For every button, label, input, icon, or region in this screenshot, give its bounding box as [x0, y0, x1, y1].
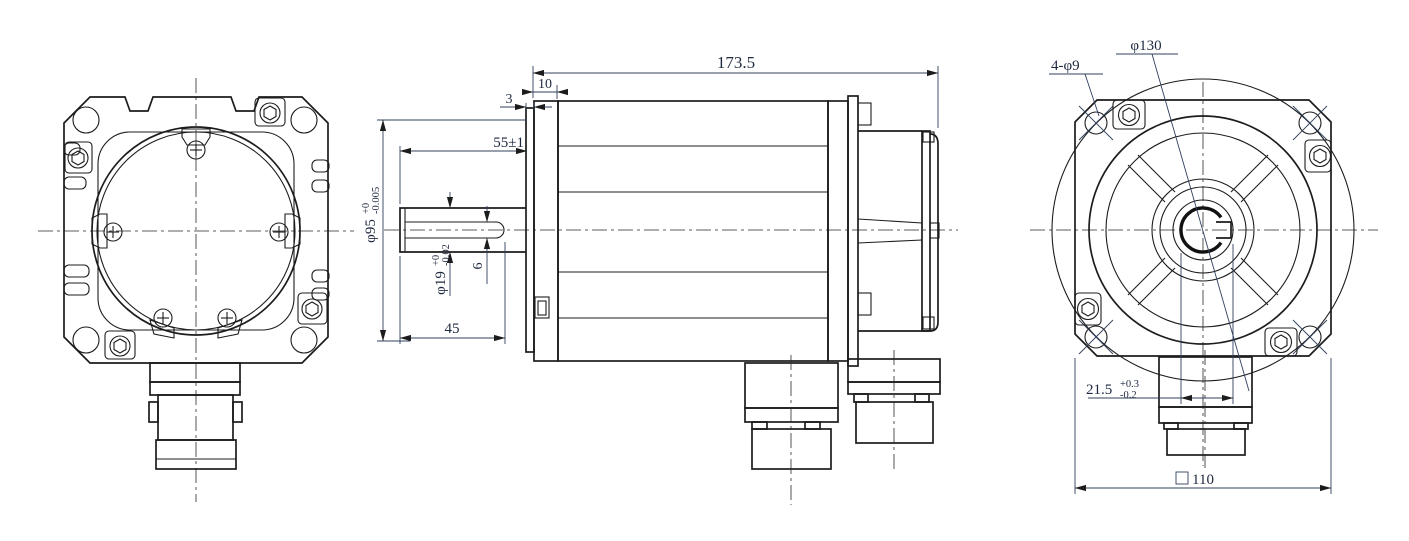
dim-overall-length: 173.5: [533, 53, 938, 128]
corner-bolt-holes: [73, 107, 317, 353]
dim-text-pilot-depth: 10: [538, 77, 552, 92]
encoder-connector: [848, 350, 940, 472]
dim-text-shaft-extension: 55±1: [493, 135, 524, 151]
rear-endbell: [828, 101, 848, 361]
side-view: 173.5 10 3 55±1 φ95 +0: [361, 53, 958, 505]
dim-text-shaft-diameter: φ19: [433, 271, 449, 295]
rear-rib: [848, 96, 858, 366]
dim-pilot-diameter: φ95 +0 -0.005: [361, 120, 526, 341]
dim-text-mounting-holes: 4-φ9: [1051, 58, 1080, 74]
dim-text-flange-square: 110: [1192, 472, 1214, 488]
dim-text-shaft-diameter-lower: -0.02: [441, 244, 452, 266]
dim-keyway-width: 6: [471, 206, 487, 284]
front-view: 4-φ9 φ130 21.5 +0.3 -0.2 110: [1030, 38, 1378, 494]
motor-dimension-drawing: 173.5 10 3 55±1 φ95 +0: [0, 0, 1409, 541]
dim-text-key-height: 21.5: [1086, 382, 1112, 398]
rear-connector: [149, 363, 242, 469]
motor-body: [526, 96, 871, 366]
encoder-housing: [858, 131, 939, 331]
rear-view: [38, 78, 354, 502]
dim-text-overall-length: 173.5: [717, 53, 755, 72]
dim-text-keyway-length: 45: [445, 321, 460, 337]
dim-text-key-height-lower: -0.2: [1120, 390, 1137, 401]
dim-mounting-holes: 4-φ9: [1049, 58, 1103, 116]
ground-terminal: [535, 297, 549, 318]
stator-housing: [558, 101, 828, 361]
drawing-sheet: 173.5 10 3 55±1 φ95 +0: [0, 0, 1409, 541]
encoder-screw-bottom: [923, 317, 934, 329]
dim-text-bolt-circle: φ130: [1130, 38, 1161, 54]
dim-shaft-extension: 55±1: [400, 135, 527, 204]
fin-lines: [558, 146, 828, 318]
dim-keyway-length: 45: [400, 242, 505, 344]
dim-pilot-depth: 10: [523, 77, 567, 99]
rib-tab-bottom: [858, 293, 871, 315]
square-symbol-icon: [1176, 472, 1188, 484]
dim-text-key-height-upper: +0.3: [1120, 379, 1139, 390]
front-endbell: [534, 101, 558, 361]
rib-tab-top: [858, 103, 871, 125]
dim-text-pilot-diameter: φ95: [363, 219, 379, 243]
front-connector: [1159, 350, 1252, 468]
encoder-end-plate: [922, 131, 930, 331]
power-connector: [745, 355, 838, 505]
dim-text-keyway-width: 6: [471, 263, 486, 270]
dim-text-flange-thickness: 3: [506, 92, 513, 107]
dim-text-pilot-diameter-lower: -0.005: [371, 187, 382, 214]
